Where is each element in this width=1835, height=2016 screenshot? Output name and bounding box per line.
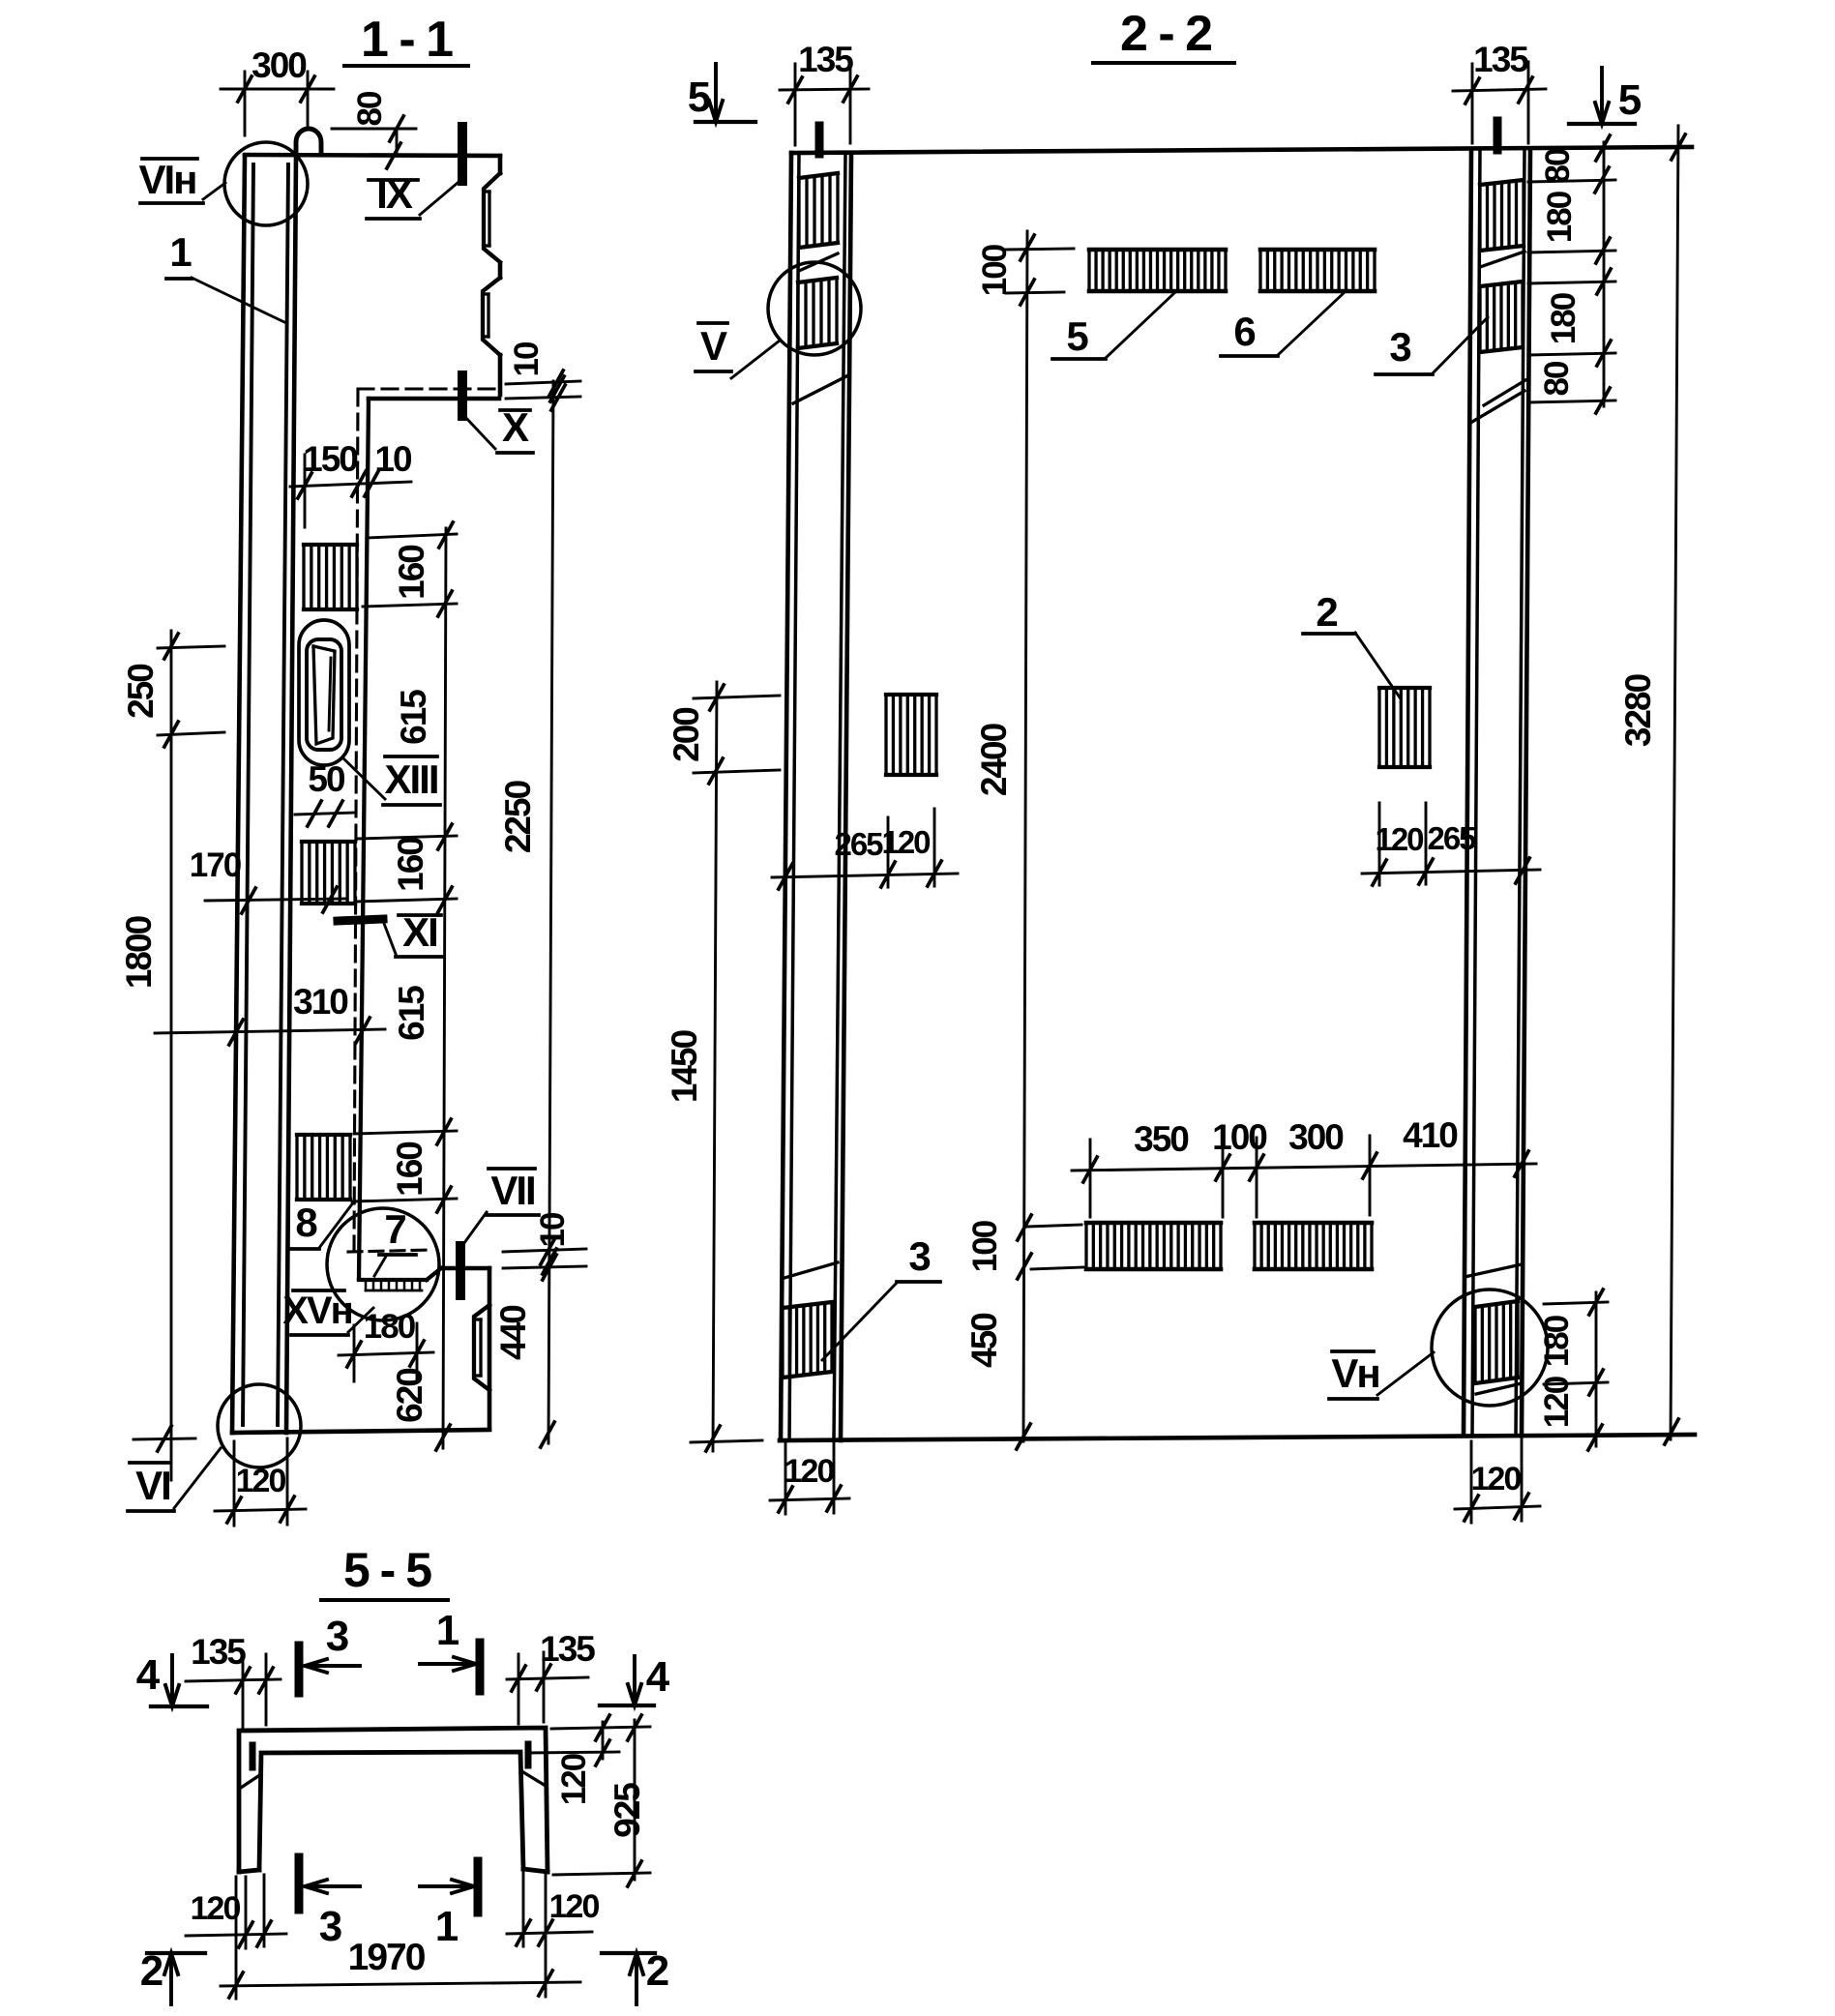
svg-text:IX: IX: [376, 171, 413, 217]
svg-text:Vн: Vн: [1331, 1350, 1378, 1396]
svg-text:100: 100: [976, 244, 1014, 296]
svg-text:615: 615: [394, 690, 433, 745]
svg-text:160: 160: [390, 1141, 429, 1197]
svg-text:410: 410: [1403, 1115, 1458, 1155]
svg-text:1: 1: [435, 1903, 459, 1950]
svg-text:VII: VII: [490, 1168, 534, 1213]
svg-text:80: 80: [351, 91, 389, 126]
svg-text:120: 120: [1375, 821, 1423, 857]
svg-text:615: 615: [392, 986, 431, 1041]
svg-text:265: 265: [1427, 820, 1476, 856]
svg-text:7: 7: [384, 1206, 405, 1252]
svg-text:V: V: [700, 323, 727, 369]
svg-text:160: 160: [392, 545, 431, 600]
svg-text:1970: 1970: [348, 1937, 426, 1978]
svg-text:440: 440: [493, 1305, 533, 1360]
svg-text:180: 180: [364, 1308, 416, 1346]
svg-text:3280: 3280: [1618, 673, 1658, 747]
svg-text:135: 135: [540, 1629, 595, 1669]
svg-text:100: 100: [966, 1220, 1004, 1272]
svg-text:50: 50: [308, 759, 345, 799]
svg-text:265: 265: [834, 826, 883, 862]
svg-text:2 - 2: 2 - 2: [1120, 6, 1211, 62]
svg-text:5: 5: [688, 74, 711, 121]
svg-text:1: 1: [436, 1607, 459, 1654]
svg-text:4: 4: [646, 1653, 670, 1701]
svg-text:135: 135: [798, 40, 853, 79]
svg-text:2250: 2250: [498, 780, 538, 853]
svg-text:5 - 5: 5 - 5: [343, 1543, 431, 1597]
svg-text:925: 925: [607, 1783, 647, 1838]
svg-text:1: 1: [169, 229, 192, 275]
svg-text:120: 120: [555, 1753, 593, 1805]
svg-text:80: 80: [1538, 361, 1576, 396]
svg-text:120: 120: [784, 1453, 835, 1490]
svg-text:135: 135: [191, 1632, 246, 1672]
svg-text:120: 120: [191, 1890, 241, 1927]
svg-text:200: 200: [666, 707, 706, 762]
svg-text:250: 250: [121, 664, 161, 719]
svg-text:135: 135: [1473, 40, 1528, 79]
svg-text:170: 170: [190, 846, 242, 884]
svg-text:8: 8: [295, 1200, 317, 1245]
svg-text:150: 150: [303, 439, 358, 479]
svg-text:120: 120: [549, 1888, 600, 1925]
svg-text:3: 3: [908, 1233, 930, 1279]
svg-text:10: 10: [508, 341, 546, 376]
svg-text:180: 180: [1541, 191, 1579, 243]
svg-text:120: 120: [236, 1463, 286, 1499]
svg-text:3: 3: [1389, 324, 1410, 370]
svg-text:620: 620: [390, 1368, 429, 1423]
svg-text:450: 450: [964, 1313, 1004, 1368]
svg-text:5: 5: [1618, 76, 1642, 124]
svg-text:VIн: VIн: [138, 157, 195, 202]
svg-text:120: 120: [1471, 1461, 1522, 1497]
svg-text:1 - 1: 1 - 1: [361, 12, 453, 68]
svg-text:1450: 1450: [665, 1029, 704, 1103]
svg-text:3: 3: [319, 1903, 341, 1950]
svg-text:310: 310: [293, 982, 348, 1022]
svg-text:1800: 1800: [119, 915, 159, 989]
svg-text:2400: 2400: [974, 723, 1014, 796]
svg-text:80: 80: [1539, 148, 1577, 183]
svg-text:10: 10: [534, 1212, 572, 1247]
svg-text:100: 100: [1212, 1117, 1267, 1157]
svg-text:180: 180: [1545, 292, 1583, 344]
svg-text:VI: VI: [135, 1463, 170, 1508]
svg-text:10: 10: [374, 439, 412, 479]
svg-text:2: 2: [1316, 589, 1337, 635]
svg-text:300: 300: [252, 45, 307, 85]
svg-text:5: 5: [1066, 313, 1088, 359]
svg-text:XVн: XVн: [282, 1290, 352, 1332]
svg-text:300: 300: [1288, 1117, 1344, 1157]
svg-text:180: 180: [1538, 1315, 1576, 1367]
svg-text:3: 3: [326, 1613, 348, 1660]
svg-text:6: 6: [1233, 309, 1255, 354]
svg-text:4: 4: [136, 1651, 161, 1699]
svg-text:XIII: XIII: [384, 756, 437, 802]
svg-text:160: 160: [391, 837, 430, 892]
svg-text:350: 350: [1134, 1119, 1189, 1159]
